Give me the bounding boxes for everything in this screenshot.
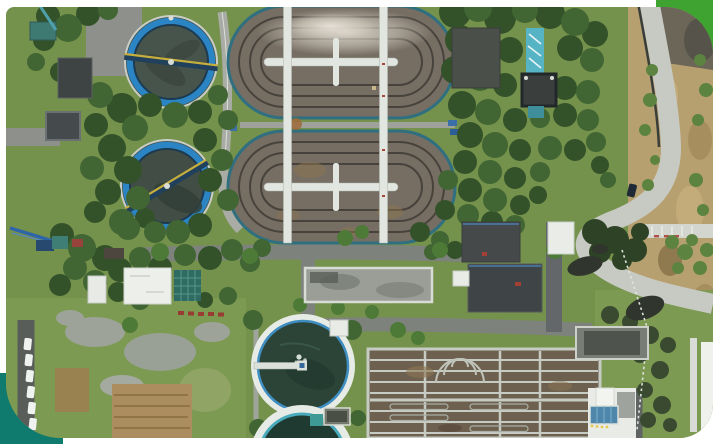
bridge-west (284, 6, 292, 243)
glass-atrium-building (588, 388, 636, 438)
workshop-dark-north (462, 222, 520, 262)
photo-content (0, 0, 713, 444)
shed-white (330, 320, 348, 336)
red-truck (72, 239, 83, 247)
bridge-east (380, 6, 388, 243)
clarifier-north (124, 15, 218, 109)
office-building-white (124, 268, 171, 304)
white-roof-building (548, 222, 574, 254)
workshop-dark-south (468, 264, 542, 312)
garden-terrace (112, 384, 192, 438)
oxidation-ditch-north (228, 6, 455, 118)
aerial-photo-svg (0, 0, 713, 444)
crane-truck (36, 240, 54, 251)
aeration-basins (368, 349, 600, 438)
flatbed-truck (104, 248, 124, 259)
treatment-plant-photo (0, 0, 713, 444)
hero-photo-card (0, 0, 713, 444)
